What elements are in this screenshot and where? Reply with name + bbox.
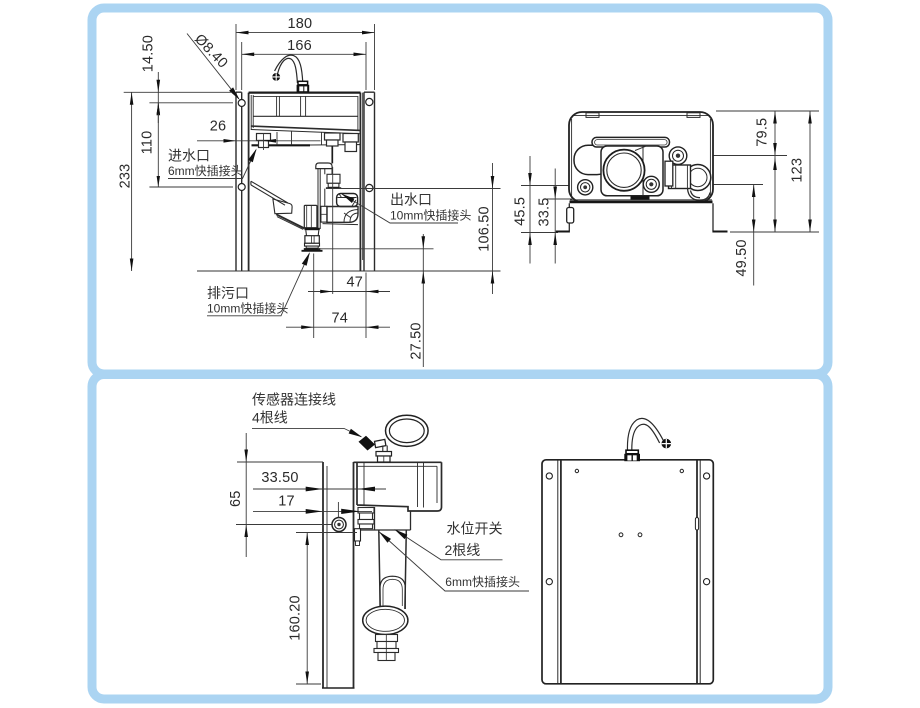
- svg-text:传感器连接线: 传感器连接线: [252, 392, 336, 408]
- svg-text:26: 26: [210, 118, 227, 134]
- svg-text:166: 166: [287, 38, 312, 54]
- svg-text:49.50: 49.50: [734, 239, 750, 276]
- svg-text:233: 233: [117, 164, 133, 189]
- svg-text:10mm快插接头: 10mm快插接头: [207, 301, 288, 316]
- svg-text:4根线: 4根线: [252, 409, 288, 425]
- svg-text:2根线: 2根线: [445, 542, 481, 558]
- svg-text:123: 123: [790, 158, 806, 183]
- svg-text:79.5: 79.5: [755, 118, 771, 147]
- svg-text:110: 110: [140, 131, 156, 155]
- svg-text:6mm快插接头: 6mm快插接头: [168, 163, 243, 178]
- svg-text:33.5: 33.5: [537, 197, 553, 226]
- svg-text:17: 17: [278, 493, 295, 509]
- svg-text:14.50: 14.50: [141, 35, 157, 72]
- svg-text:27.50: 27.50: [409, 322, 425, 359]
- svg-text:45.5: 45.5: [513, 197, 529, 226]
- svg-text:106.50: 106.50: [477, 206, 493, 252]
- svg-text:6mm快插接头: 6mm快插接头: [445, 574, 520, 589]
- svg-text:水位开关: 水位开关: [447, 521, 503, 537]
- svg-text:33.50: 33.50: [261, 470, 298, 486]
- svg-text:进水口: 进水口: [168, 148, 210, 164]
- svg-text:47: 47: [347, 275, 364, 291]
- svg-text:180: 180: [288, 16, 313, 32]
- svg-text:排污口: 排污口: [207, 285, 249, 301]
- svg-text:10mm快插接头: 10mm快插接头: [390, 207, 471, 222]
- svg-text:出水口: 出水口: [390, 192, 432, 208]
- svg-text:74: 74: [332, 311, 349, 327]
- svg-text:160.20: 160.20: [288, 595, 304, 641]
- svg-text:65: 65: [228, 490, 244, 507]
